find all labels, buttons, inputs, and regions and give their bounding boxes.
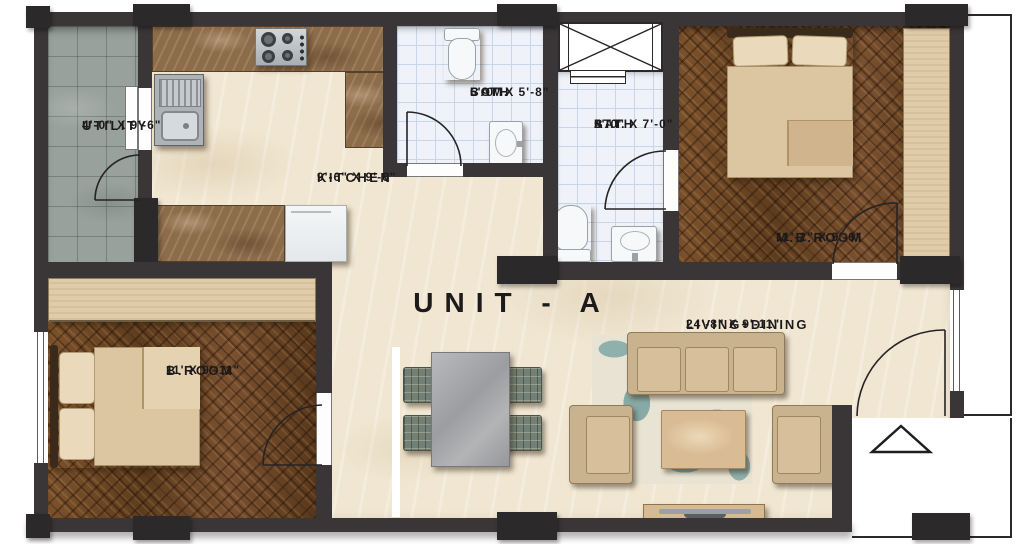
- toilet-bowl: [554, 205, 588, 251]
- kitchen-counter-bottom: [152, 205, 285, 262]
- bed-headboard: [50, 345, 58, 468]
- room-dims: 4'-0" X 9'-6": [82, 118, 161, 132]
- bed-pillow: [59, 352, 95, 404]
- sink-bowl: [161, 111, 199, 141]
- wall-right-upper: [950, 12, 964, 288]
- bed-pillow: [59, 408, 95, 460]
- b-room-wardrobe: [48, 278, 316, 322]
- bed-pillow: [732, 35, 788, 67]
- coffee-table: [661, 410, 746, 469]
- stove-knobs: [300, 34, 304, 62]
- room-dims: 5'-0" X 7'-0": [594, 117, 673, 131]
- window-b-room: [34, 330, 48, 465]
- side-open-area: [964, 14, 1012, 416]
- wall-attbath-left: [543, 26, 558, 280]
- room-dims: 5'-0" X 5'-8": [470, 85, 549, 99]
- toilet-bowl: [448, 38, 476, 80]
- gas-stove: [255, 28, 307, 66]
- basin-tap: [517, 141, 524, 147]
- basin-bowl: [620, 231, 650, 251]
- floor-divider-strip: [392, 347, 400, 517]
- pillar: [497, 4, 557, 26]
- kitchen-sink: [154, 74, 204, 146]
- basin-bowl: [495, 129, 517, 157]
- armchair-cushion: [586, 416, 630, 474]
- burner: [282, 33, 293, 44]
- bed-blanket: [787, 120, 853, 166]
- pillar: [26, 6, 50, 28]
- room-dims: 11' X 9'-11": [166, 363, 240, 377]
- sink-drainboard: [159, 79, 201, 107]
- pillar: [133, 516, 190, 540]
- com-bath-toilet: [444, 28, 480, 80]
- burner: [262, 50, 275, 63]
- floor-plan: UTILITY 4'-0" X 9'-6" KITCHEN 9'-6" X 9'…: [0, 0, 1024, 544]
- wall-entrance-stub: [832, 405, 852, 532]
- room-dims: 24'-8" X 9'-11": [686, 317, 780, 331]
- wall-right-lower: [950, 393, 964, 418]
- sofa-cushion: [685, 347, 729, 392]
- com-bath-washbasin: [489, 121, 523, 165]
- door-gap-att-bath: [663, 150, 679, 211]
- door-gap-com-bath: [407, 163, 463, 177]
- armchair-cushion: [777, 416, 821, 474]
- bed-pillow: [791, 35, 847, 67]
- door-gap-b-room: [316, 393, 332, 465]
- armchair-right: [772, 405, 836, 484]
- room-dims: 9'-6" X 9'-6": [317, 170, 396, 184]
- dining-table: [431, 352, 510, 467]
- pillar: [905, 4, 968, 26]
- pillar: [26, 514, 50, 538]
- pillar: [133, 4, 190, 26]
- pillar: [497, 256, 557, 284]
- sofa-3-seater: [627, 332, 785, 395]
- wall-broom-top: [34, 262, 332, 278]
- pillar: [497, 512, 557, 540]
- mb-room-wardrobe: [903, 28, 950, 259]
- att-bath-washbasin: [611, 226, 657, 262]
- door-gap-mb-room: [832, 262, 897, 280]
- wall-utility-junction: [134, 198, 158, 262]
- sofa-cushion: [733, 347, 777, 392]
- unit-title: UNIT - A: [413, 287, 610, 319]
- sofa-cushion: [637, 347, 681, 392]
- window-living-right: [950, 288, 964, 393]
- armchair-left: [569, 405, 633, 484]
- wall-combath-left: [383, 26, 397, 166]
- att-bath-ventilator: [570, 70, 626, 84]
- pillar: [900, 256, 960, 284]
- refrigerator: [285, 205, 347, 262]
- bed-blanket: [142, 347, 200, 409]
- duct-shaft: [558, 22, 663, 72]
- pillar-porch: [912, 513, 970, 540]
- room-dims: 11'-2" X 9'-6": [776, 230, 862, 244]
- sink-drain: [183, 123, 189, 129]
- mb-room-bed: [727, 28, 853, 178]
- basin-tap: [632, 253, 638, 261]
- burner: [282, 50, 293, 61]
- fridge-handle: [291, 211, 331, 213]
- burner: [261, 32, 276, 47]
